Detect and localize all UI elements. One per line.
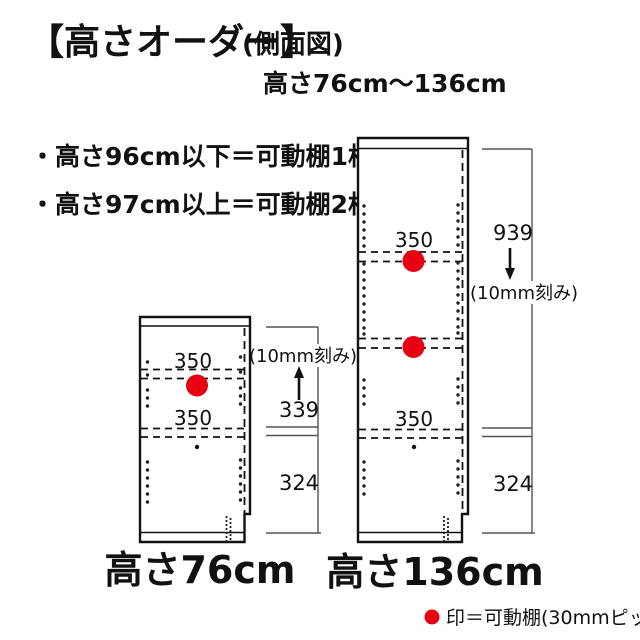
pin-hole-dot — [362, 270, 365, 273]
movable-shelf-marker — [403, 250, 425, 272]
cabinet-136cm-name: 高さ136cm — [326, 550, 543, 594]
dimension-lower-76cm: 324 — [279, 471, 319, 495]
page-subtitle: (側面図) — [242, 30, 344, 60]
pin-hole-dot — [229, 518, 231, 520]
dimension-76cm: (10mm刻み) 339 324 — [249, 327, 357, 533]
pin-hole-dot — [362, 278, 365, 281]
pin-hole-dot — [146, 373, 149, 376]
pin-hole-dot — [443, 536, 445, 538]
pin-hole-dot — [456, 393, 459, 396]
pin-hole-dot — [456, 261, 459, 264]
height-order-diagram-page: 【高さオーダー】 (側面図) 高さ76cm～136cm ・高さ96cm以下＝可動… — [0, 0, 640, 640]
pin-hole-dot — [443, 520, 445, 522]
pin-hole-dot — [239, 466, 242, 469]
pin-hole-dot — [362, 394, 365, 397]
pin-hole-dot — [146, 388, 149, 391]
pin-hole-dot — [447, 538, 449, 540]
pin-hole-dot — [362, 468, 365, 471]
pin-hole-dot — [239, 386, 242, 389]
movable-shelf-marker — [403, 336, 425, 358]
pin-hole-dot — [362, 244, 365, 247]
pin-hole-dot — [362, 402, 365, 405]
dimension-upper-136cm: 939 — [493, 221, 533, 245]
movable-shelf-legend-icon — [425, 610, 440, 625]
pin-hole-dot — [456, 377, 459, 380]
pin-hole-dot — [456, 269, 459, 272]
pin-hole-dot — [456, 211, 459, 214]
pin-hole-dot — [362, 310, 365, 313]
pin-hole-dot — [239, 402, 242, 405]
note-shelf-rule-2: ・高さ97cm以上＝可動棚2枚 — [30, 190, 373, 219]
pin-hole-dot — [456, 277, 459, 280]
dimension-upper-76cm: 339 — [279, 398, 319, 422]
pin-hole-dot — [362, 204, 365, 207]
pin-hole-dot — [456, 483, 459, 486]
pin-hole-dot — [225, 516, 227, 518]
shelf-depth-label: 350 — [395, 407, 433, 431]
dimension-lower-136cm: 324 — [493, 472, 533, 496]
pin-hole-dot — [447, 518, 449, 520]
pin-hole-dot — [239, 370, 242, 373]
dimension-136cm: 939 (10mm刻み) 324 — [470, 149, 578, 533]
pin-hole-dot — [456, 219, 459, 222]
cabinet-136cm: 350 350 高さ136cm — [326, 138, 543, 594]
movable-shelf-marker — [186, 375, 208, 397]
height-order-diagram: 【高さオーダー】 (側面図) 高さ76cm～136cm ・高さ96cm以下＝可動… — [0, 0, 640, 640]
pin-hole-dot — [456, 293, 459, 296]
pin-hole-dot — [225, 540, 227, 542]
pin-hole-dot — [443, 528, 445, 530]
pin-hole-dot — [362, 332, 365, 335]
height-range-label: 高さ76cm～136cm — [263, 69, 507, 98]
pin-hole-dot — [146, 492, 149, 495]
pin-hole-dot — [362, 286, 365, 289]
pin-hole-dot — [229, 530, 231, 532]
pin-hole-dot — [225, 536, 227, 538]
pin-hole-dot — [225, 528, 227, 530]
shelf-depth-label: 350 — [174, 349, 212, 373]
note-shelf-rule-1: ・高さ96cm以下＝可動棚1枚 — [30, 142, 373, 171]
pin-hole-dot — [362, 460, 365, 463]
pin-hole-dot — [229, 538, 231, 540]
pin-hole-dot — [362, 476, 365, 479]
pin-hole-dot — [146, 460, 149, 463]
pin-hole-dot — [362, 302, 365, 305]
pin-hole-dot — [229, 526, 231, 528]
pin-hole-dot — [456, 227, 459, 230]
pin-hole-dot — [456, 325, 459, 328]
pin-hole-dot — [239, 498, 242, 501]
pin-hole-dot — [362, 236, 365, 239]
pin-hole-dot — [362, 220, 365, 223]
pin-hole-dot — [443, 540, 445, 542]
notes-block: ・高さ96cm以下＝可動棚1枚 ・高さ97cm以上＝可動棚2枚 — [30, 142, 373, 219]
pin-hole-dot — [456, 385, 459, 388]
pin-hole-dot — [456, 285, 459, 288]
pin-hole-dot — [239, 355, 242, 358]
legend: 印＝可動棚(30mmピッチ) — [425, 607, 640, 629]
pin-hole-dot — [447, 534, 449, 536]
pin-hole-dot — [456, 491, 459, 494]
pin-hole-dot — [146, 484, 149, 487]
pin-hole-dot — [447, 526, 449, 528]
pin-hole-dot — [225, 520, 227, 522]
pin-hole-dot — [443, 524, 445, 526]
pin-hole-dot — [239, 394, 242, 397]
pin-hole-dot — [447, 522, 449, 524]
pin-hole-dot — [362, 386, 365, 389]
pin-hole-dot — [456, 243, 459, 246]
pin-hole-dot — [456, 235, 459, 238]
pin-hole-dot — [225, 532, 227, 534]
legend-text: 印＝可動棚(30mmピッチ) — [446, 607, 640, 629]
pin-hole-dot — [146, 476, 149, 479]
title-block: 【高さオーダー】 (側面図) 高さ76cm～136cm — [28, 22, 507, 98]
pin-hole-dot — [456, 467, 459, 470]
pin-hole-dot — [146, 360, 149, 363]
pin-hole-dot — [362, 212, 365, 215]
pin-hole-dot — [146, 396, 149, 399]
pin-hole-dot — [456, 475, 459, 478]
pin-hole-dot — [456, 301, 459, 304]
pin-hole-dot — [362, 326, 365, 329]
pin-hole-dot — [362, 318, 365, 321]
cabinet-76cm-name: 高さ76cm — [104, 548, 295, 592]
pin-hole-dot — [456, 309, 459, 312]
pin-hole-dot — [456, 401, 459, 404]
pin-hole-dot — [146, 468, 149, 471]
pin-hole-dot — [239, 458, 242, 461]
pin-hole-dot — [362, 262, 365, 265]
pin-hole-dot — [239, 474, 242, 477]
up-arrow-head — [294, 366, 304, 378]
pin-hole-dot — [229, 534, 231, 536]
pin-hole-dot — [229, 522, 231, 524]
pin-hole-dot — [447, 530, 449, 532]
pin-hole-dot — [456, 203, 459, 206]
pin-hole-dot — [456, 317, 459, 320]
shelf-depth-label: 350 — [174, 406, 212, 430]
back-panel-dot — [412, 445, 416, 449]
pin-hole-dot — [456, 459, 459, 462]
pin-hole-dot — [146, 500, 149, 503]
shelf-depth-label: 350 — [395, 228, 433, 252]
pin-hole-dot — [443, 532, 445, 534]
pin-hole-dot — [362, 228, 365, 231]
pin-hole-dot — [362, 378, 365, 381]
pin-hole-dot — [239, 482, 242, 485]
pin-hole-dot — [239, 490, 242, 493]
pin-hole-dot — [362, 492, 365, 495]
pin-hole-dot — [443, 516, 445, 518]
pin-hole-dot — [225, 524, 227, 526]
back-panel-dot — [195, 445, 199, 449]
pin-hole-dot — [456, 331, 459, 334]
pitch-note-136cm: (10mm刻み) — [470, 283, 578, 304]
down-arrow-head — [505, 268, 515, 280]
pin-hole-dot — [362, 484, 365, 487]
pitch-note-76cm: (10mm刻み) — [249, 346, 357, 367]
pin-hole-dot — [146, 404, 149, 407]
pin-hole-dot — [362, 294, 365, 297]
